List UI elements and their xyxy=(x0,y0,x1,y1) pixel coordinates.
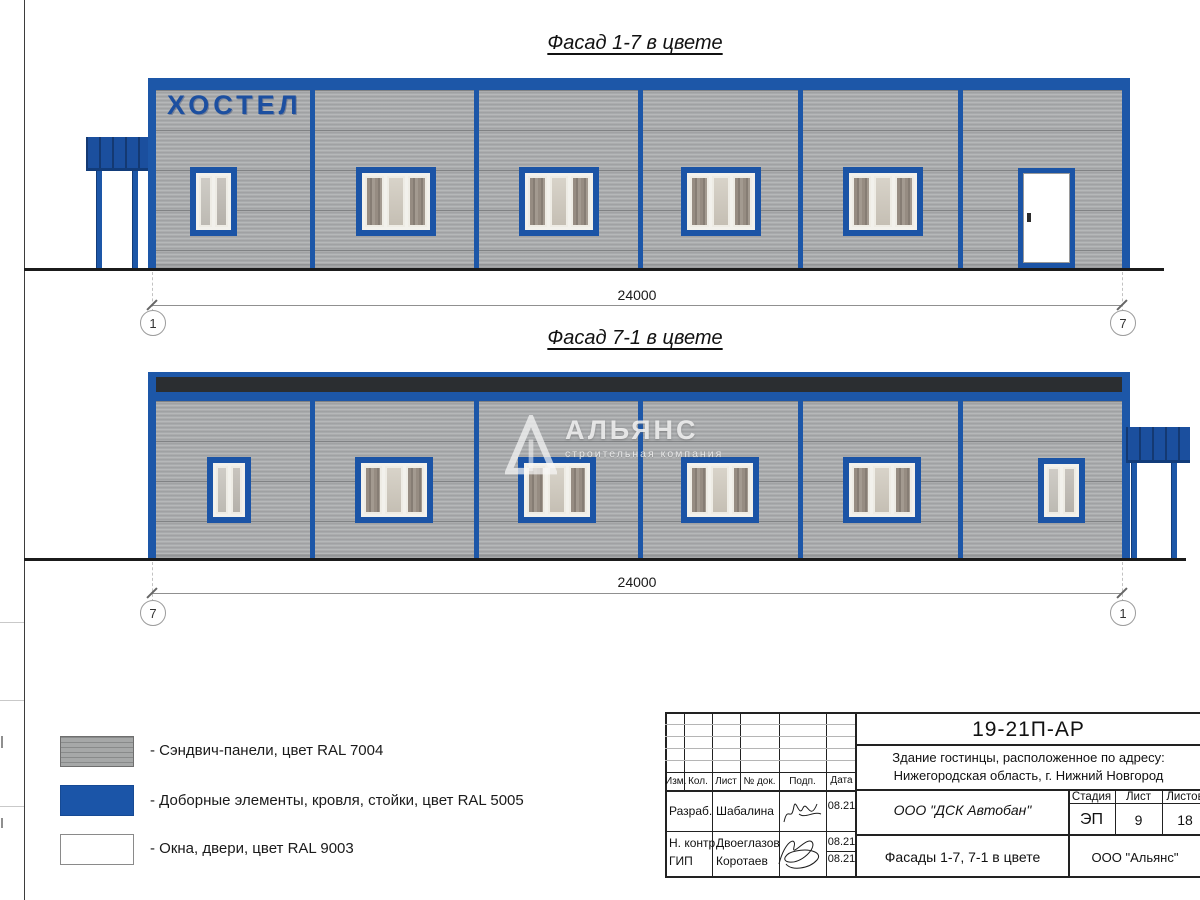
panel-joint xyxy=(958,88,963,268)
window xyxy=(843,167,923,236)
window-frame xyxy=(849,463,915,517)
window-frame xyxy=(362,173,430,230)
tb-grid xyxy=(665,790,857,792)
dimension-value: 24000 xyxy=(150,287,1124,303)
window-pane xyxy=(527,466,545,514)
window-pane xyxy=(406,466,424,514)
window-frame xyxy=(196,173,231,230)
axis-bubble: 7 xyxy=(140,600,166,626)
tb-grid xyxy=(857,744,1200,746)
row-date: 08.21 xyxy=(826,853,857,865)
stage-label: Стадия xyxy=(1068,791,1115,803)
window-pane xyxy=(873,466,891,514)
project-address-line1: Здание гостинцы, расположенное по адресу… xyxy=(857,750,1200,765)
window-pane xyxy=(733,176,752,227)
col-izm: Изм. xyxy=(665,776,684,787)
window-pane xyxy=(1047,467,1060,514)
col-podp: Подп. xyxy=(779,776,826,787)
col-kol: Кол. xyxy=(684,776,712,787)
row-name: Шабалина xyxy=(716,804,774,818)
contractor-name: ООО "ДСК Автобан" xyxy=(857,802,1068,818)
tb-grid xyxy=(826,851,857,852)
side-stamp-mark xyxy=(1,818,3,828)
ground-line xyxy=(24,268,1164,271)
window-pane xyxy=(895,176,914,227)
window-pane xyxy=(690,176,709,227)
signature xyxy=(773,832,827,876)
roof-dark-band xyxy=(155,377,1123,392)
stage-value: ЭП xyxy=(1068,811,1115,829)
window xyxy=(681,457,759,523)
roof-parapet-band xyxy=(148,392,1130,401)
side-stamp-line xyxy=(0,622,24,623)
window-pane xyxy=(690,466,708,514)
panel-joint xyxy=(638,401,643,558)
corner-trim xyxy=(148,78,156,268)
sheets-value: 18 xyxy=(1162,812,1200,828)
legend-label: - Окна, двери, цвет RAL 9003 xyxy=(150,840,354,857)
panel-joint xyxy=(638,88,643,268)
window-pane xyxy=(216,466,228,514)
corner-trim xyxy=(1122,78,1130,268)
corner-trim xyxy=(148,372,156,558)
window-pane xyxy=(199,176,212,227)
window xyxy=(519,167,599,236)
window xyxy=(356,167,436,236)
window xyxy=(207,457,251,523)
row-role: Разраб. xyxy=(669,804,712,818)
row-role: ГИП xyxy=(669,854,693,868)
row-name: Двоеглазов xyxy=(716,836,780,850)
window-frame xyxy=(361,463,427,517)
window-pane xyxy=(408,176,427,227)
window-pane xyxy=(571,176,590,227)
org-name: ООО "Альянс" xyxy=(1068,850,1200,865)
doc-code: 19-21П-АР xyxy=(857,718,1200,742)
col-list: Лист xyxy=(712,776,740,787)
window-pane xyxy=(385,466,403,514)
canopy-post xyxy=(96,171,102,268)
facade-7-1-title: Фасад 7-1 в цвете xyxy=(150,327,1120,350)
canopy-post xyxy=(1131,463,1137,559)
legend-swatch-trim xyxy=(60,785,134,816)
side-stamp-mark xyxy=(1,736,3,748)
window-pane xyxy=(712,176,731,227)
facade-1-7-title: Фасад 1-7 в цвете xyxy=(150,32,1120,55)
sheet-value: 9 xyxy=(1115,812,1162,828)
axis-bubble: 1 xyxy=(1110,600,1136,626)
sheets-label: Листов xyxy=(1162,791,1200,803)
panel-joint xyxy=(474,88,479,268)
window-pane xyxy=(852,466,870,514)
hostel-sign: ХОСТЕЛ xyxy=(167,90,302,121)
signature xyxy=(780,796,824,830)
row-date: 08.21 xyxy=(826,800,857,812)
window-pane xyxy=(215,176,228,227)
col-ndok: № док. xyxy=(740,776,779,787)
window xyxy=(681,167,761,236)
window-pane xyxy=(569,466,587,514)
drawing-title: Фасады 1-7, 7-1 в цвете xyxy=(857,849,1068,865)
side-stamp-line xyxy=(0,700,24,701)
canopy-roof xyxy=(86,137,152,171)
canopy-post xyxy=(1171,463,1177,559)
corner-trim xyxy=(1122,372,1130,558)
dimension-line xyxy=(152,593,1122,594)
window xyxy=(1038,458,1085,523)
legend-swatch-windows xyxy=(60,834,134,865)
panel-joint xyxy=(310,88,315,268)
window-frame xyxy=(687,173,755,230)
window-pane xyxy=(894,466,912,514)
legend-swatch-panels xyxy=(60,736,134,767)
entrance-door xyxy=(1018,168,1075,268)
window-pane xyxy=(550,176,569,227)
panel-joint xyxy=(474,401,479,558)
window-pane xyxy=(365,176,384,227)
window-pane xyxy=(528,176,547,227)
window xyxy=(355,457,433,523)
panel-joint xyxy=(798,88,803,268)
window-frame xyxy=(1044,464,1079,517)
window xyxy=(190,167,237,236)
dimension-value: 24000 xyxy=(150,574,1124,590)
panel-joint xyxy=(310,401,315,558)
window-frame xyxy=(849,173,917,230)
window-frame xyxy=(687,463,753,517)
sheet-label: Лист xyxy=(1115,791,1162,803)
tb-grid xyxy=(665,724,855,725)
tb-grid xyxy=(665,736,855,737)
canopy-roof xyxy=(1126,427,1190,463)
window-frame xyxy=(524,463,590,517)
row-date: 08.21 xyxy=(826,836,857,848)
window-pane xyxy=(711,466,729,514)
ground-line xyxy=(24,558,1186,561)
window xyxy=(518,457,596,523)
side-stamp-line xyxy=(0,806,24,807)
panel-joint xyxy=(958,401,963,558)
row-name: Коротаев xyxy=(716,854,768,868)
door-handle xyxy=(1027,213,1031,222)
tb-border xyxy=(665,712,1200,714)
tb-grid xyxy=(665,748,855,749)
window-pane xyxy=(387,176,406,227)
window-pane xyxy=(364,466,382,514)
window-pane xyxy=(231,466,243,514)
door-panel xyxy=(1023,173,1070,263)
tb-grid xyxy=(1068,803,1200,804)
canopy-post xyxy=(132,171,138,268)
window-pane xyxy=(874,176,893,227)
tb-grid xyxy=(665,772,855,773)
dimension-line xyxy=(152,305,1122,306)
tb-grid xyxy=(665,831,857,832)
tb-grid xyxy=(665,760,855,761)
window-pane xyxy=(1063,467,1076,514)
col-data: Дата xyxy=(826,775,857,786)
row-role: Н. контр. xyxy=(669,836,719,850)
panel-joint xyxy=(798,401,803,558)
window-frame xyxy=(525,173,593,230)
legend-label: - Сэндвич-панели, цвет RAL 7004 xyxy=(150,742,383,759)
tb-border xyxy=(665,876,1200,878)
legend-label: - Доборные элементы, кровля, стойки, цве… xyxy=(150,792,524,809)
window-pane xyxy=(732,466,750,514)
title-block: 19-21П-АР Здание гостинцы, расположенное… xyxy=(665,712,1200,878)
tb-grid xyxy=(857,834,1200,836)
window-pane xyxy=(548,466,566,514)
project-address-line2: Нижегородская область, г. Нижний Новгоро… xyxy=(857,768,1200,783)
sheet-frame-line xyxy=(24,0,25,900)
window-frame xyxy=(213,463,245,517)
window-pane xyxy=(852,176,871,227)
window xyxy=(843,457,921,523)
drawing-sheet: Фасад 1-7 в цвете ХОСТЕЛ 24000 1 7 Фасад… xyxy=(0,0,1200,900)
